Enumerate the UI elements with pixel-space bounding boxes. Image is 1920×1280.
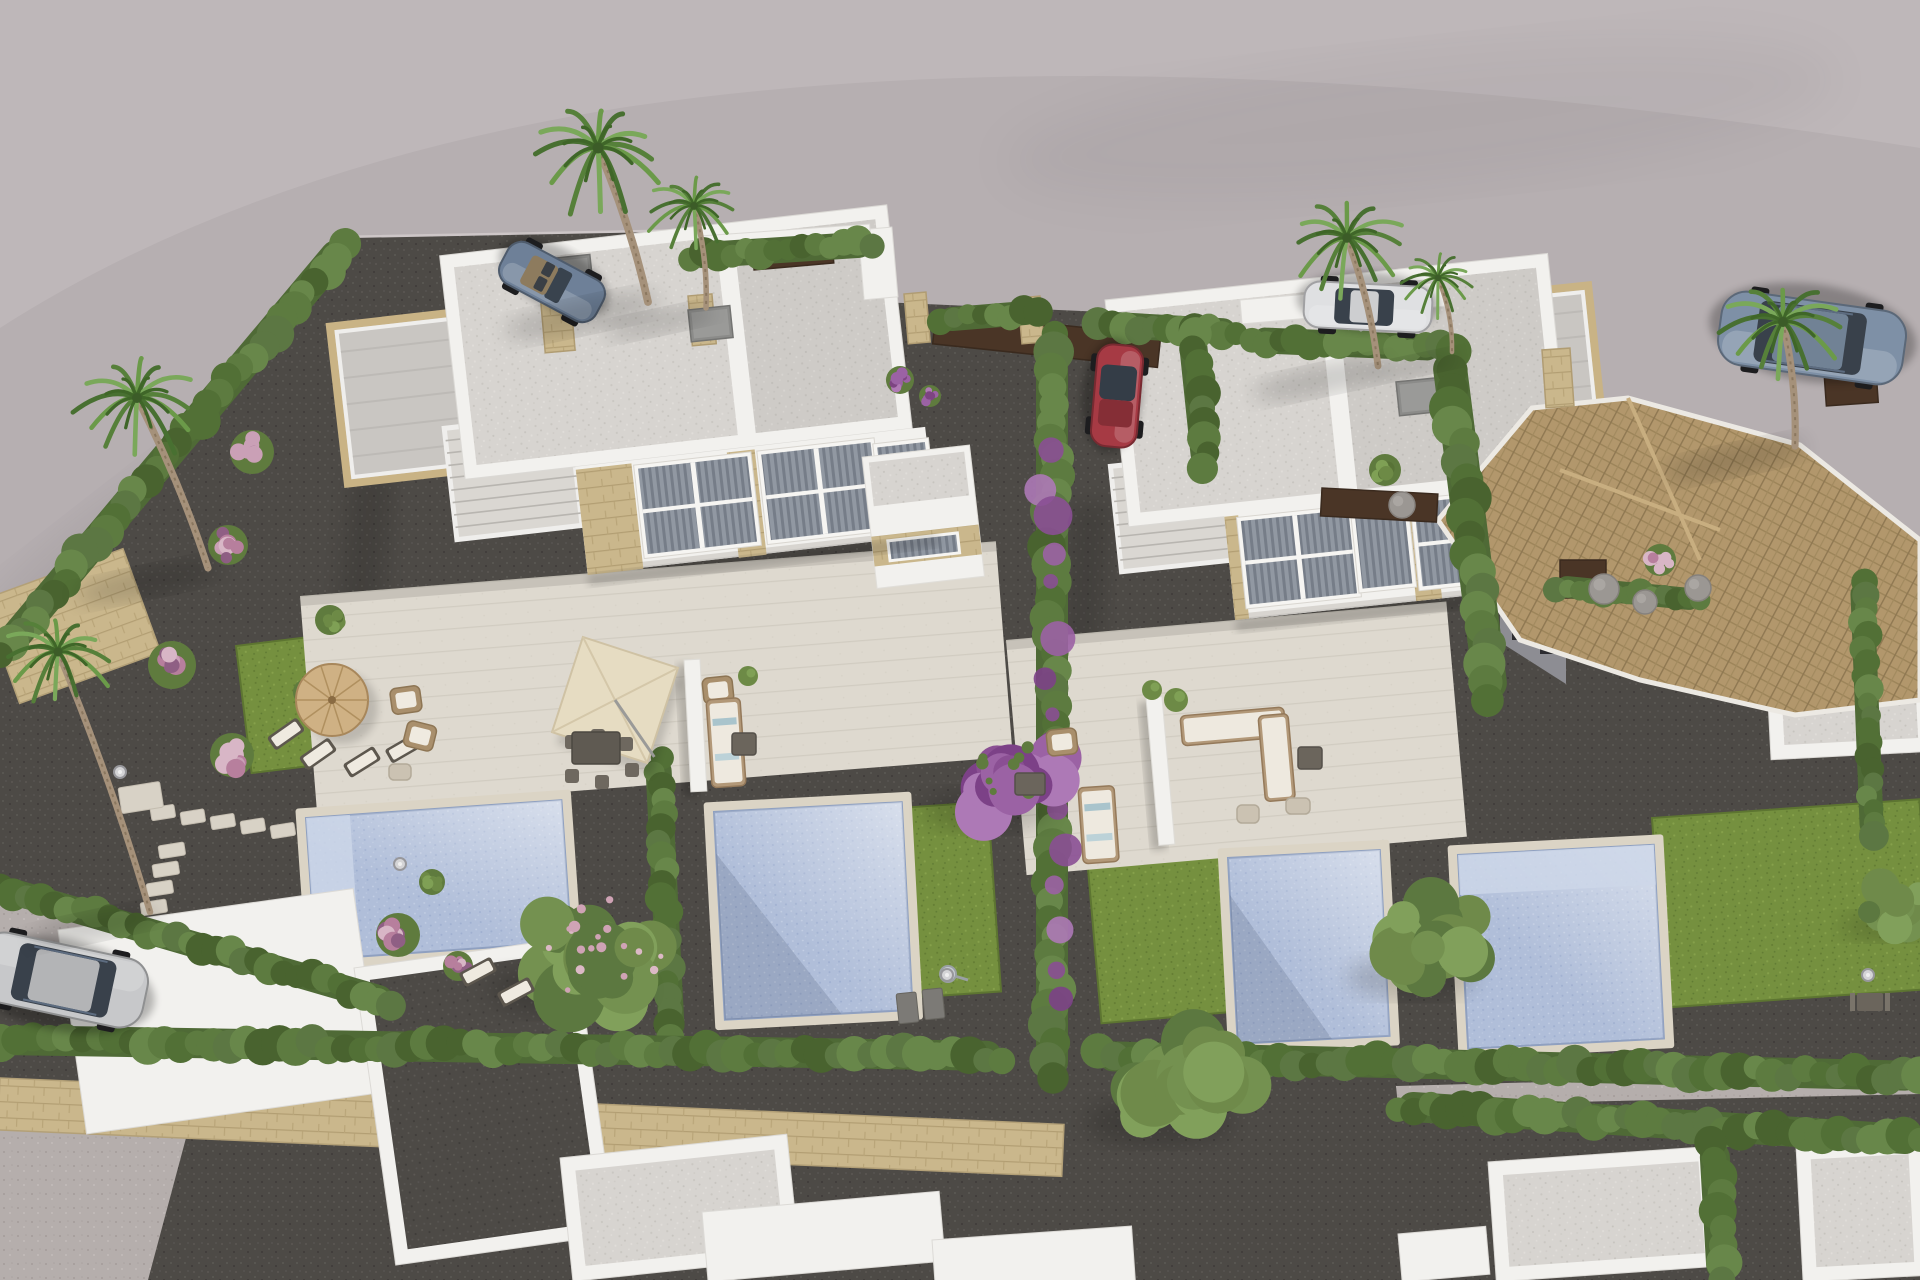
bush-bloom	[230, 443, 247, 460]
blossom	[650, 966, 658, 974]
blossom	[621, 943, 627, 949]
purple-flower-bush	[886, 366, 914, 394]
bush-bloom	[223, 538, 235, 550]
landscape-rock	[1633, 590, 1657, 614]
armchair-cushion	[1051, 733, 1073, 751]
leaf-spot	[990, 788, 997, 795]
bougainvillea-bloom	[1043, 543, 1066, 566]
bush-bloom	[324, 619, 332, 627]
glass-roof	[1099, 364, 1138, 402]
garden-lamp	[394, 858, 406, 870]
dining-chair	[565, 769, 579, 783]
landscape-rock	[1589, 574, 1619, 604]
rock-light	[1637, 594, 1647, 604]
bush-bloom	[435, 876, 443, 884]
render-viewport: Aerial 3D render of new-build white dupl…	[0, 0, 1920, 1280]
bougainvillea-bloom	[1043, 574, 1058, 589]
window-glass	[1355, 510, 1412, 589]
rooftop-parapet	[1398, 1226, 1490, 1280]
neighbor-rooftop	[1398, 1226, 1490, 1280]
pouf	[1286, 798, 1310, 814]
green-flower-bush	[1369, 454, 1401, 486]
garden-lamp	[941, 969, 953, 981]
parasol-pole	[328, 696, 336, 704]
palm-frond	[694, 206, 696, 248]
bougainvillea-bloom	[1040, 621, 1075, 656]
blossom	[596, 942, 606, 952]
bougainvillea-bloom	[1046, 916, 1073, 943]
rock	[1633, 590, 1657, 614]
dining-chair	[619, 737, 633, 751]
blossom	[546, 945, 552, 951]
rock-light	[1594, 579, 1606, 591]
gate-panel	[1321, 488, 1438, 522]
landscape-rock	[1685, 575, 1711, 601]
palm-frond	[598, 148, 600, 211]
pillar	[1542, 348, 1574, 408]
pillar	[904, 292, 930, 344]
blossom	[658, 954, 663, 959]
bush-bloom	[161, 647, 177, 663]
palm-crown	[54, 648, 63, 657]
bush-bloom	[1379, 466, 1393, 480]
armchair-cushion	[395, 691, 417, 710]
bush-bloom	[1654, 563, 1665, 574]
sofa-cushions	[1081, 790, 1116, 860]
palm-crown	[132, 393, 142, 403]
bougainvillea-bloom	[1034, 496, 1073, 535]
deck-mat	[896, 992, 919, 1024]
wicker-armchair	[1046, 728, 1079, 757]
roof-panel	[1097, 399, 1133, 428]
terrace-planter	[1142, 680, 1162, 700]
mat	[896, 992, 919, 1024]
stone-pillar	[904, 292, 930, 344]
lamp-light	[1866, 973, 1870, 977]
bush-bloom	[1665, 559, 1675, 569]
blossom	[636, 948, 643, 955]
rock	[1685, 575, 1711, 601]
palm-crown	[1342, 233, 1351, 242]
dining-chair	[625, 763, 639, 777]
pouf	[1237, 805, 1259, 823]
blossom	[621, 973, 628, 980]
garden-lamp	[1862, 969, 1874, 981]
neighbor-rooftop	[1488, 1146, 1720, 1280]
outdoor-sofa	[1078, 785, 1119, 863]
leaf-spot	[1023, 745, 1029, 751]
bush-bloom	[391, 933, 406, 948]
bougainvillea-bloom	[1048, 962, 1065, 979]
side-table	[1298, 747, 1322, 769]
leaf-spot	[1008, 758, 1020, 770]
tree-foliage	[1411, 931, 1445, 965]
blossom	[603, 925, 611, 933]
rock	[1389, 492, 1415, 518]
wicker-armchair	[389, 685, 422, 715]
tree-foliage	[1858, 901, 1880, 923]
purple-flower-bush	[919, 385, 941, 407]
pink-flower-bush	[148, 641, 196, 689]
bush-bloom	[226, 759, 245, 778]
leaf-spot	[976, 757, 988, 769]
deck-mat	[922, 988, 945, 1020]
lamp-light	[118, 770, 122, 774]
tree-foliage	[1881, 883, 1915, 917]
swimming-pool	[703, 792, 923, 1031]
blossom	[576, 965, 585, 974]
side-table	[732, 733, 756, 755]
corner-sofa-section	[1258, 713, 1295, 801]
bench	[1850, 993, 1855, 1011]
rock	[1589, 574, 1619, 604]
palm-crown	[1435, 275, 1441, 281]
blossom	[566, 926, 572, 932]
blossom	[577, 904, 586, 913]
armchair-cushion	[707, 681, 729, 699]
aerial-render-canvas: Aerial 3D render of new-build white dupl…	[0, 0, 1920, 1280]
tree-foliage	[614, 928, 654, 968]
lamp-light	[945, 973, 949, 977]
lamp-light	[398, 862, 402, 866]
blossom	[606, 896, 613, 903]
tree-foliage	[520, 897, 575, 952]
table	[1857, 993, 1883, 1011]
pink-flower-bush	[376, 913, 420, 957]
stone-cladding	[576, 463, 644, 575]
planter-leaf	[1174, 691, 1185, 702]
palm-crown	[593, 143, 604, 154]
leaf-spot	[986, 778, 993, 785]
terrace-planter	[738, 666, 758, 686]
rooftop-surface	[1811, 1154, 1915, 1267]
pink-flower-bush	[230, 430, 274, 474]
blossom	[588, 945, 594, 951]
planter-leaf	[747, 669, 756, 678]
rooftop-surface	[1503, 1161, 1705, 1266]
garden-lamp	[114, 766, 126, 778]
rock-light	[1689, 579, 1699, 589]
bougainvillea-bloom	[1049, 834, 1082, 867]
bush-bloom	[246, 446, 263, 463]
tree-foliage	[1183, 1042, 1244, 1103]
pink-flower-bush	[208, 525, 248, 565]
dining-chair	[595, 775, 609, 789]
bush-bloom	[891, 372, 904, 385]
bougainvillea-bloom	[1038, 437, 1063, 462]
bush-bloom	[332, 610, 343, 621]
bush-bloom	[1648, 552, 1659, 563]
bougainvillea-bloom	[1045, 707, 1059, 721]
mat	[922, 988, 945, 1020]
corten-gate	[1321, 488, 1438, 522]
bougainvillea-bloom	[1034, 667, 1057, 690]
neighbor-rooftop	[1796, 1139, 1920, 1280]
blossom	[565, 987, 570, 992]
rock-light	[1393, 496, 1403, 506]
palm-crown	[690, 202, 698, 210]
bush-bloom	[454, 962, 462, 970]
green-flower-bush	[419, 869, 445, 895]
landscape-rock	[1389, 492, 1415, 518]
planter-leaf	[1151, 683, 1160, 692]
bench	[1885, 993, 1890, 1011]
blossom	[577, 945, 585, 953]
tree-foliage	[1387, 901, 1420, 934]
palm-crown	[1778, 317, 1788, 327]
pouf	[389, 764, 411, 780]
bougainvillea-bloom	[1045, 875, 1064, 894]
dining-table	[572, 732, 620, 764]
terrace-planter	[1164, 688, 1188, 712]
bush-bloom	[221, 552, 232, 563]
palm-frond	[135, 398, 137, 455]
blossom	[595, 934, 601, 940]
hedge-bush	[1037, 1062, 1068, 1093]
tree-foliage	[1437, 926, 1488, 977]
bush-bloom	[925, 391, 933, 399]
stone-pillar	[1542, 348, 1574, 408]
side-table	[1015, 773, 1045, 795]
bush-bloom	[422, 878, 433, 889]
bush-bloom	[245, 431, 260, 446]
bougainvillea-bloom	[1049, 987, 1073, 1011]
